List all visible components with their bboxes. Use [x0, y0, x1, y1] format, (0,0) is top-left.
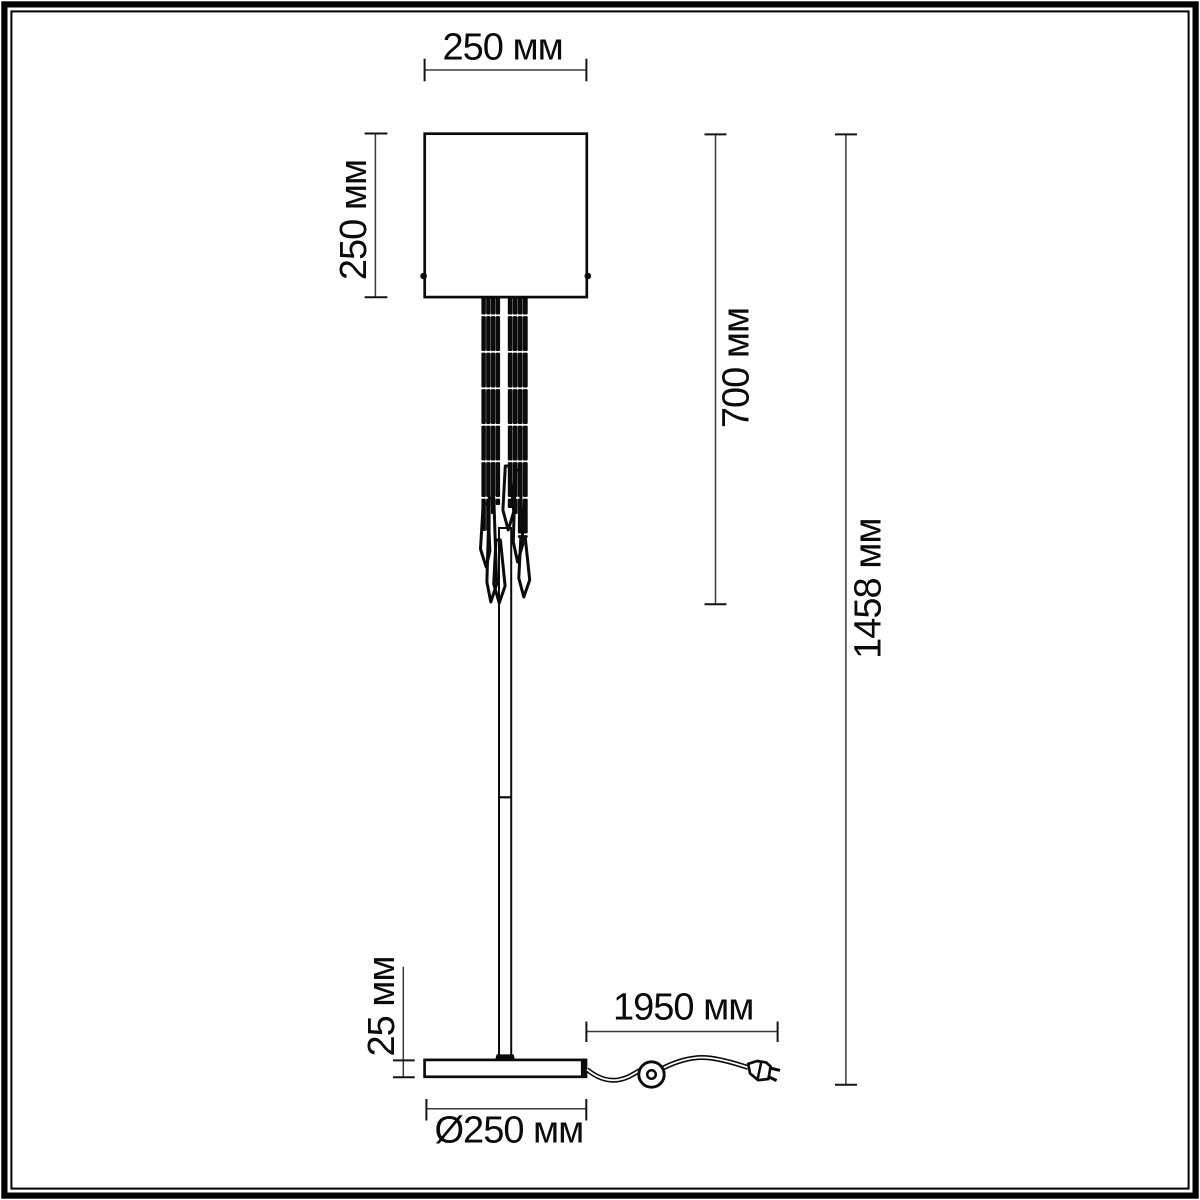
svg-text:25 мм: 25 мм: [361, 956, 403, 1056]
svg-text:250 мм: 250 мм: [333, 160, 375, 280]
svg-text:1458 мм: 1458 мм: [847, 519, 889, 659]
svg-text:Ø250 мм: Ø250 мм: [435, 1110, 584, 1152]
svg-text:1950 мм: 1950 мм: [613, 987, 753, 1029]
svg-text:250 мм: 250 мм: [442, 27, 562, 69]
svg-text:700 мм: 700 мм: [715, 308, 757, 428]
